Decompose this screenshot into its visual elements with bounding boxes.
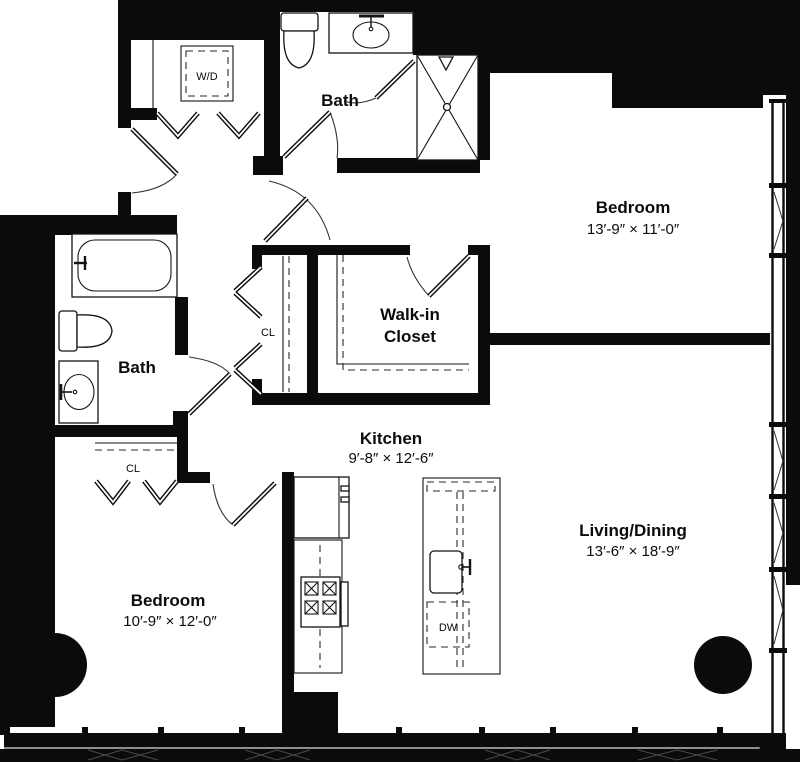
walk-in-closet-door [407,256,469,296]
toilet-icon [281,13,318,68]
wall-segment [118,192,131,217]
kitchen-dims: 9′-8″ × 12′-6″ [348,450,434,467]
wall-segment [252,393,490,405]
walk-in-closet-label-line1: Walk-in [380,305,440,324]
wall-segment [612,95,763,108]
wall-segment [175,297,188,355]
bath-top-door [284,112,338,158]
window-mullion [769,99,787,103]
wall-segment [131,108,157,120]
window-mullion [769,183,787,188]
window-casement-mark [774,192,783,249]
hall-closet-doors [235,267,261,394]
round-column [694,636,752,694]
bath-left-door [189,357,230,414]
bedroom-left-dims: 10′-9″ × 12′-0″ [123,613,217,630]
wall-segment [282,692,338,733]
living-dining-label: Living/Dining [579,521,687,540]
wall-segment [478,333,770,345]
hall-door [265,181,330,241]
bedroom-closet-label: CL [126,463,140,475]
entry-door [132,129,177,193]
hall-closet-label: CL [261,327,275,339]
bath-left-label: Bath [118,358,156,377]
wd-bifold-doors [157,113,259,136]
wall-segment [118,40,131,128]
wall-segment [307,255,318,393]
kitchen-label: Kitchen [360,429,422,448]
bath-left-fixtures [59,234,177,423]
toilet-icon [59,311,112,351]
wall-segment [118,0,267,40]
living-dining-dims: 13′-6″ × 18′-9″ [586,543,680,560]
wall-segment [177,472,210,483]
bath-top-label: Bath [321,91,359,110]
island-sink-icon [430,551,471,593]
fridge-icon [294,477,349,538]
wall-segment [490,0,612,73]
window-mullion [769,494,787,499]
window-mullion [769,567,787,572]
window-casement-mark [774,431,783,490]
kitchen-fixtures [294,477,500,674]
wall-segment [478,30,490,160]
half-round-column [23,633,87,697]
wall-segment [55,425,188,437]
wall-segment [478,245,490,405]
stove-icon [301,577,348,627]
wall-segment [267,0,417,12]
floorplan-page: Bath Bedroom 13′-9″ × 11′-0″ Walk-in Clo… [0,0,800,762]
wall-segment [252,245,410,255]
window-casement-mark [774,576,783,644]
window-casement-mark [774,503,783,563]
wall-segment [264,12,280,158]
bathtub-icon [72,234,177,297]
bedroom-right-label: Bedroom [596,198,671,217]
washer-dryer-icon [153,40,233,108]
bedroom-closet-bifold-doors [96,481,177,502]
window-mullion [769,648,787,653]
window-mullion [769,422,787,427]
sink-icon [329,13,413,53]
sink-icon [59,361,98,423]
washer-dryer-label: W/D [196,71,217,83]
island-counter [423,478,500,674]
window-band [4,733,786,747]
wall-segment [55,215,177,235]
bedroom-right-dims: 13′-9″ × 11′-0″ [587,221,680,238]
walk-in-closet-label-line2: Closet [384,327,436,346]
wall-segment [253,156,283,175]
bedroom-left-door [213,483,275,525]
wall-segment [282,472,294,692]
floorplan-canvas: Bath Bedroom 13′-9″ × 11′-0″ Walk-in Clo… [0,0,800,762]
dishwasher-label: DW [439,622,458,634]
wall-segment [612,0,786,95]
shower-icon [417,55,478,160]
bedroom-left-label: Bedroom [131,591,206,610]
wall-segment [786,0,800,585]
window-mullion [769,253,787,258]
